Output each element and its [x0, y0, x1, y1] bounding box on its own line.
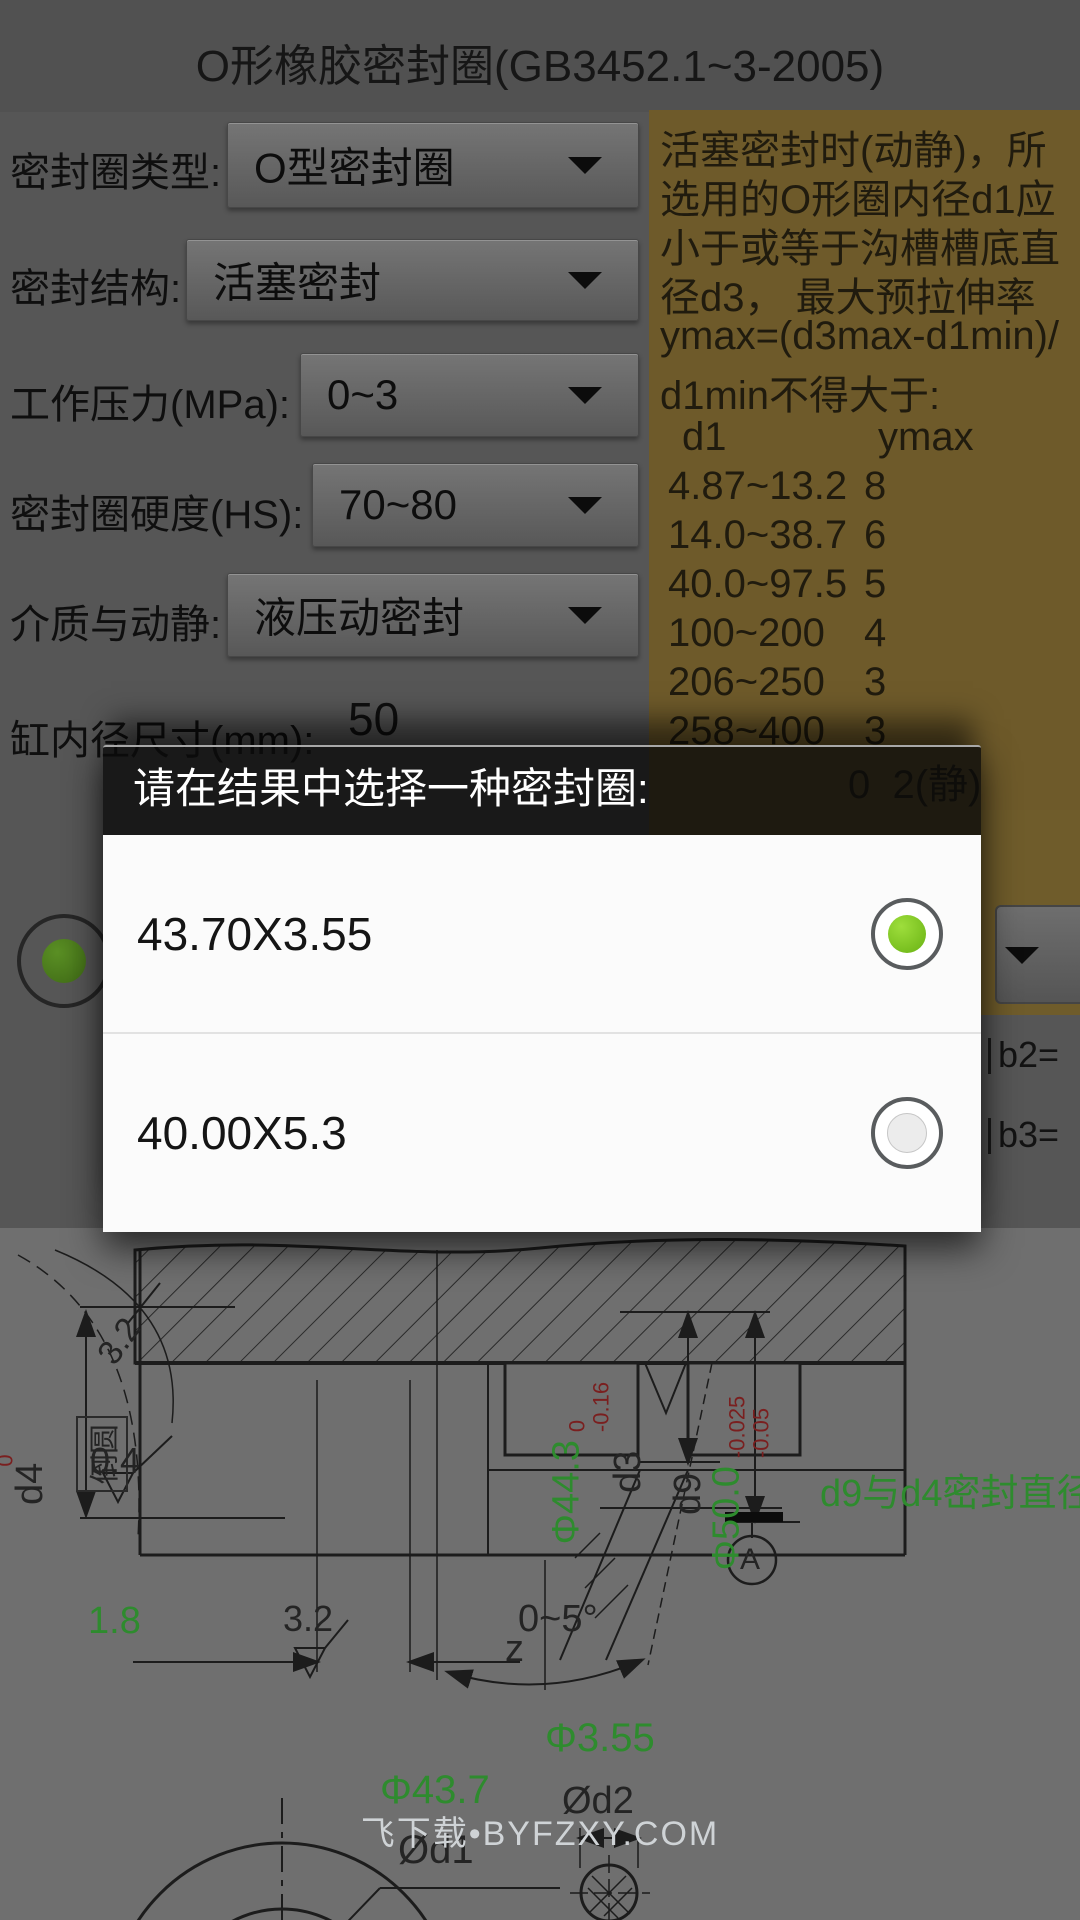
- seal-type-spinner[interactable]: O型密封圈: [227, 122, 639, 208]
- radio-selected-icon[interactable]: [871, 898, 943, 970]
- field-label-medium: 介质与动静:: [10, 592, 221, 650]
- structure-spinner[interactable]: 活塞密封: [186, 239, 639, 321]
- table-header-d1: d1: [668, 415, 878, 460]
- dialog-header: 请在结果中选择一种密封圈:: [103, 745, 981, 837]
- option-43-70x3-55[interactable]: 43.70X3.55: [103, 835, 981, 1033]
- dim-d9: d9: [667, 1473, 710, 1515]
- field-label-structure: 密封结构:: [10, 256, 181, 314]
- dim-d3: d3: [607, 1451, 650, 1493]
- chevron-down-icon: [568, 607, 602, 624]
- table-header-ymax: ymax: [878, 415, 974, 460]
- dim-d4: d4: [9, 1463, 52, 1505]
- seal-diameter-note: d9与d4密封直径: [820, 1462, 1080, 1517]
- chevron-down-icon: [568, 272, 602, 289]
- divider: [988, 1038, 991, 1074]
- b3-fragment: b3=: [998, 1114, 1059, 1156]
- dialog-body: 43.70X3.55 40.00X5.3: [103, 835, 981, 1232]
- dim-phi44: Φ44.3 0-0.16: [546, 1382, 608, 1544]
- chevron-down-icon: [568, 157, 602, 174]
- background-radio-selected[interactable]: [17, 914, 111, 1008]
- dim-angle: 0~5°: [518, 1598, 598, 1641]
- pressure-spinner[interactable]: 0~3: [300, 353, 639, 437]
- watermark: 飞下载•BYFZXY.COM: [0, 1806, 1080, 1855]
- field-label-seal-type: 密封圈类型:: [10, 140, 221, 198]
- dim-phi3-55: Φ3.55: [545, 1716, 655, 1761]
- table-row: 40.0~97.55: [668, 562, 886, 607]
- info-line: ymax=(d3max-d1min)/: [660, 314, 1059, 359]
- b2-fragment: b2=: [998, 1034, 1059, 1076]
- field-label-pressure: 工作压力(MPa):: [10, 372, 290, 430]
- chevron-down-icon: [568, 497, 602, 514]
- field-label-hardness: 密封圈硬度(HS):: [10, 482, 303, 540]
- option-40-00x5-3[interactable]: 40.00X5.3: [103, 1034, 981, 1232]
- table-row: 100~2004: [668, 611, 886, 656]
- selection-dialog: 请在结果中选择一种密封圈: 43.70X3.55 40.00X5.3: [103, 745, 981, 1232]
- chevron-down-icon: [568, 387, 602, 404]
- table-row: 4.87~13.28: [668, 464, 886, 509]
- app-screen: O形橡胶密封圈(GB3452.1~3-2005) 密封圈类型: 密封结构: 工作…: [0, 0, 1080, 1920]
- page-title: O形橡胶密封圈(GB3452.1~3-2005): [0, 30, 1080, 94]
- dialog-title: 请在结果中选择一种密封圈:: [133, 755, 649, 816]
- bore-size-input[interactable]: 50: [348, 692, 399, 746]
- radio-unselected-icon[interactable]: [871, 1097, 943, 1169]
- info-line: d1min不得大于:: [660, 363, 940, 421]
- dim-1-8: 1.8: [88, 1600, 141, 1643]
- radio-dot-icon: [42, 939, 86, 983]
- table-row: 206~2503: [668, 660, 886, 705]
- roughness-left: 0.4: [90, 1440, 140, 1482]
- hardness-spinner[interactable]: 70~80: [312, 463, 639, 547]
- chevron-down-icon: [1005, 947, 1039, 964]
- datum-label: A: [740, 1543, 760, 1577]
- roughness-bottom: 3.2: [283, 1598, 333, 1640]
- divider: [988, 1118, 991, 1154]
- medium-spinner[interactable]: 液压动密封: [227, 573, 639, 657]
- result-spinner-partial[interactable]: [995, 905, 1080, 1004]
- table-row: 14.0~38.76: [668, 513, 886, 558]
